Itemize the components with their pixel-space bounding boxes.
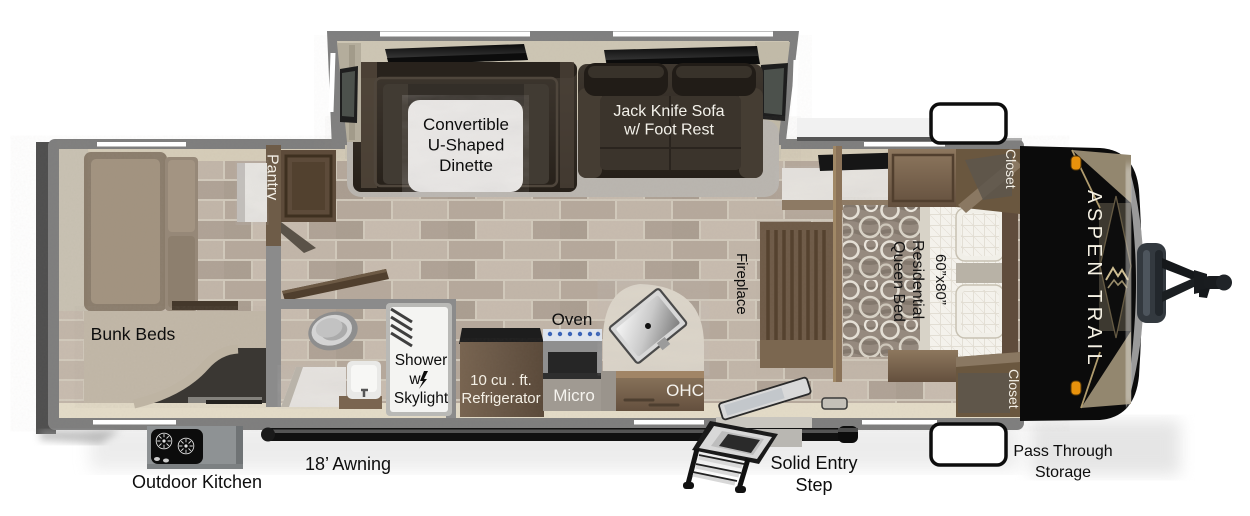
svg-text:Oven: Oven [552, 310, 593, 329]
svg-text:Jack Knife Sofa: Jack Knife Sofa [613, 103, 724, 120]
svg-text:Queen Bed: Queen Bed [890, 241, 907, 322]
svg-text:60”x80”: 60”x80” [932, 254, 949, 305]
svg-text:Bunk Beds: Bunk Beds [91, 324, 176, 344]
svg-text:Skylight: Skylight [394, 390, 449, 407]
svg-text:Storage: Storage [1035, 464, 1091, 481]
svg-text:Outdoor Kitchen: Outdoor Kitchen [132, 472, 262, 492]
svg-text:Closet: Closet [1006, 369, 1022, 409]
svg-text:18’ Awning: 18’ Awning [305, 454, 391, 474]
svg-text:w/ Foot Rest: w/ Foot Rest [623, 122, 714, 139]
svg-text:Solid Entry: Solid Entry [770, 453, 857, 473]
svg-text:Micro: Micro [553, 386, 595, 405]
svg-text:Residential: Residential [909, 240, 926, 319]
svg-text:10 cu . ft.: 10 cu . ft. [470, 372, 532, 389]
svg-text:Refrigerator: Refrigerator [461, 390, 540, 407]
svg-text:Dinette: Dinette [439, 156, 493, 175]
svg-text:Step: Step [795, 475, 832, 495]
svg-text:U-Shaped: U-Shaped [428, 136, 505, 155]
svg-text:Pass Through: Pass Through [1013, 443, 1112, 460]
svg-text:w: w [408, 371, 421, 388]
svg-text:Closet: Closet [1003, 149, 1019, 189]
svg-text:OHC: OHC [666, 381, 704, 400]
svg-text:Shower: Shower [395, 352, 448, 369]
svg-text:Convertible: Convertible [423, 115, 509, 134]
svg-text:Fireplace: Fireplace [733, 253, 750, 315]
svg-text:ASPEN TRAIL: ASPEN TRAIL [1083, 190, 1105, 369]
